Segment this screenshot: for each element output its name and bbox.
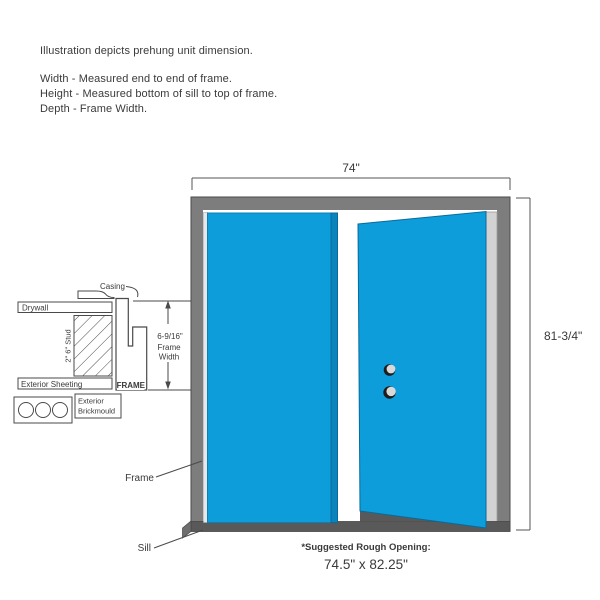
- arrow-up-icon: [165, 301, 171, 309]
- sill-leader-label: Sill: [138, 543, 151, 554]
- arrow-down-icon: [165, 382, 171, 390]
- sill-leader-line: [154, 530, 203, 548]
- exterior-sheeting-label: Exterior Sheeting: [21, 380, 82, 389]
- brickmould-circle: [53, 403, 68, 418]
- rough-opening-value: 74.5" x 82.25": [324, 557, 408, 572]
- frame-width-word2: Width: [159, 353, 179, 362]
- drywall-label: Drywall: [22, 304, 48, 313]
- width-dimension-bracket: [192, 178, 510, 190]
- width-dimension-label: 74": [342, 161, 360, 175]
- stud-label: 2" 6" Stud: [64, 329, 73, 362]
- rough-opening-note: *Suggested Rough Opening:: [301, 542, 430, 553]
- casing-leader-line: [126, 287, 138, 298]
- casing-label: Casing: [100, 282, 125, 291]
- wall-cross-section-detail: Casing Drywall 2" 6" Stud FRAME Exterior…: [14, 282, 191, 423]
- diagram-svg: 74" 81-3/4" Frame Sill *Suggested Rough …: [0, 0, 600, 600]
- frame-section-label: FRAME: [117, 381, 146, 390]
- height-dimension-label: 81-3/4": [544, 329, 582, 343]
- frame-leader-label: Frame: [125, 473, 154, 484]
- brickmould-circle: [36, 403, 51, 418]
- brickmould-label-line2: Brickmould: [78, 407, 115, 416]
- stud-section: [74, 316, 112, 377]
- casing-profile: [78, 291, 114, 299]
- right-door-panel: [358, 212, 486, 529]
- left-door-panel: [208, 213, 332, 523]
- height-dimension-bracket: [516, 198, 530, 530]
- door-dimension-illustration: Illustration depicts prehung unit dimens…: [0, 0, 600, 600]
- brickmould-label-line1: Exterior: [78, 397, 104, 406]
- brickmould-circle: [19, 403, 34, 418]
- door-knob-icon: [383, 386, 396, 398]
- frame-jamb-profile: [116, 299, 147, 391]
- left-door-hinge-gap: [204, 213, 208, 523]
- prehung-unit-diagram: 74" 81-3/4" Frame Sill *Suggested Rough …: [125, 161, 582, 572]
- frame-width-word1: Frame: [157, 343, 181, 352]
- left-door-edge: [331, 213, 338, 523]
- frame-width-value: 6-9/16": [157, 332, 183, 341]
